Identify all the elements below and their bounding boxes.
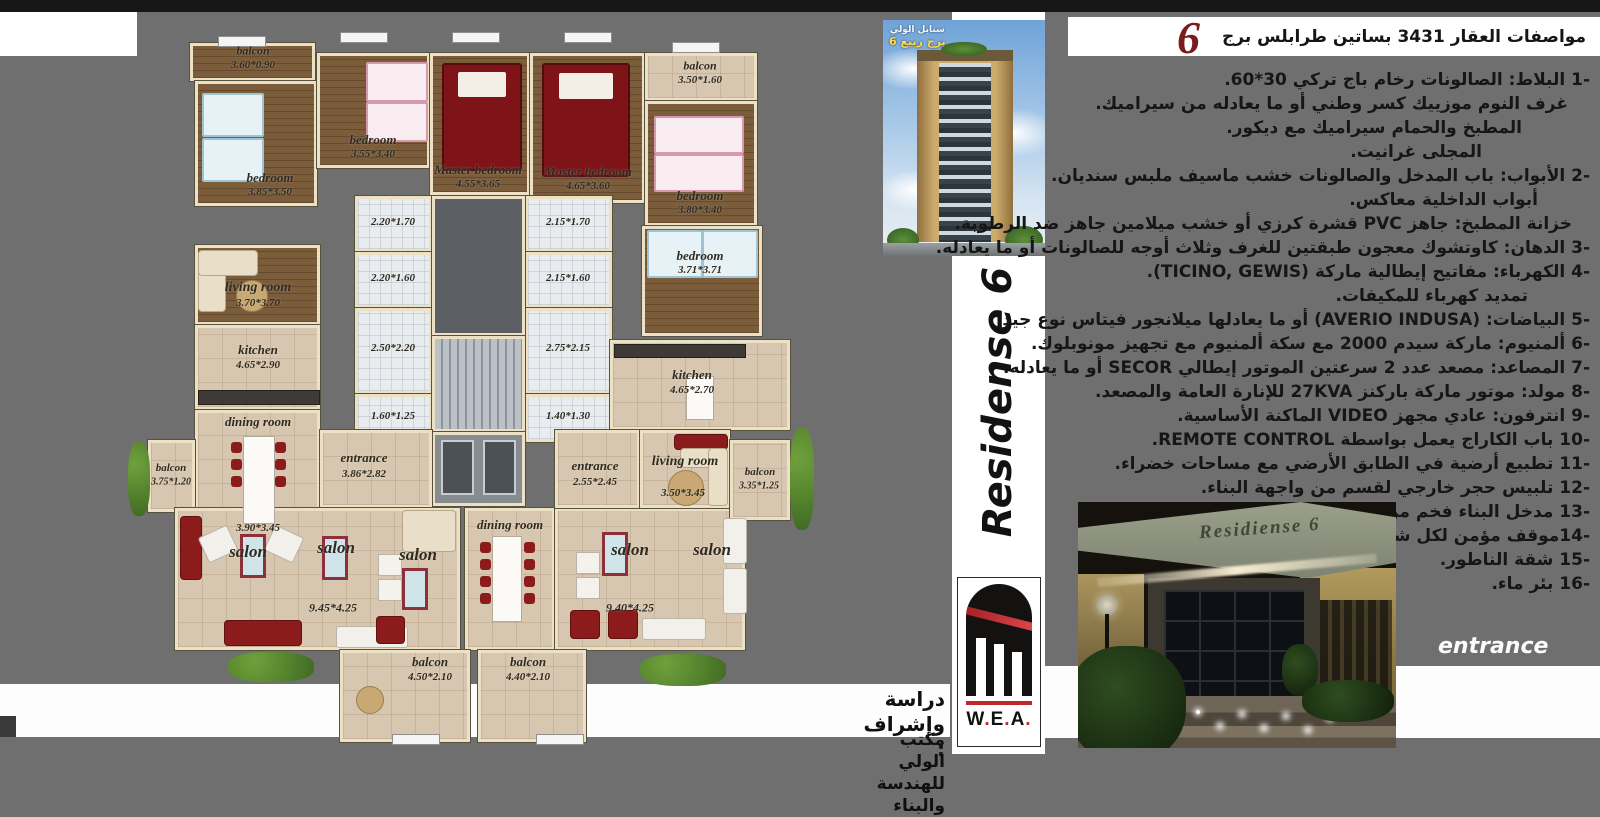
furniture-mirror — [402, 568, 428, 610]
room-label: kitchen — [238, 342, 278, 358]
furniture-bedred — [542, 63, 630, 177]
photo-plant — [1078, 646, 1186, 748]
room-lift — [432, 432, 525, 506]
room-label: 3.86*2.82 — [342, 468, 386, 480]
room-void — [432, 196, 525, 336]
furniture-win — [536, 734, 584, 745]
room-label: 4.50*2.10 — [408, 671, 452, 683]
room-label: 3.70*3.70 — [236, 297, 280, 309]
furniture-bedkid — [202, 93, 264, 137]
render-caption: سنابل الولي برج ربيع 6 — [889, 25, 946, 48]
room-label: bedroom — [677, 188, 724, 204]
room-label: kitchen — [672, 367, 712, 383]
room-label: balcon — [745, 466, 776, 478]
room-label: entrance — [572, 458, 619, 474]
furniture-sofar — [376, 616, 405, 644]
furniture-chairr — [275, 459, 286, 470]
room-label: 3.50*3.45 — [661, 487, 705, 499]
logo-red-line — [966, 701, 1032, 705]
room-label: entrance — [341, 450, 388, 466]
furniture-chairr — [480, 559, 491, 570]
left-edge-notch — [0, 716, 16, 737]
logo-letter: A — [1011, 709, 1026, 730]
logo-red-stripe — [966, 604, 1032, 633]
furniture-chairr — [524, 559, 535, 570]
furniture-chairr — [231, 442, 242, 453]
logo-pillar — [1012, 652, 1022, 696]
room-label: 3.75*1.20 — [151, 477, 191, 488]
furniture-win — [392, 734, 440, 745]
room-label: balcon — [683, 59, 716, 74]
room-label: 9.45*4.25 — [309, 601, 357, 616]
spec-item: -10 باب الكاراج يعمل بواسطة REMOTE CONTR… — [1050, 428, 1590, 452]
furniture-sofar — [570, 610, 600, 639]
render-caption-line2: برج ربيع 6 — [889, 35, 946, 48]
wea-logo: W.E.A. — [957, 577, 1041, 747]
photo-step-lights — [1196, 710, 1200, 714]
room-label: bedroom — [677, 248, 724, 264]
room-label: Master bedroom — [434, 162, 522, 178]
room-label: 2.50*2.20 — [371, 342, 415, 354]
furniture-chairr — [480, 593, 491, 604]
spec-item: غرف النوم موزييك كسر وطني أو ما يعادله م… — [1050, 92, 1590, 116]
furniture-chairr — [275, 442, 286, 453]
furniture-rug — [356, 686, 384, 714]
render-caption-line1: سنابل الولي — [889, 25, 946, 35]
room-label: 1.60*1.25 — [371, 410, 415, 422]
room-label: 3.85*3.50 — [248, 186, 292, 198]
furniture-sofaw — [642, 618, 706, 640]
spec-item: المطبخ والحمام سيراميك مع ديكور. — [1050, 116, 1590, 140]
furniture-sofar — [180, 516, 202, 580]
furniture-white2 — [576, 552, 600, 574]
room-label: 3.60*0.90 — [231, 59, 275, 71]
spec-item: تمديد كهرباء للمكيفات. — [1050, 284, 1590, 308]
page-title: مواصفات العقار 3431 بساتين طرابلس برج — [1222, 27, 1586, 47]
room-label: 2.20*1.60 — [371, 272, 415, 284]
room-label: 4.65*2.90 — [236, 359, 280, 371]
entrance-photo: Residiense 6 — [1078, 502, 1396, 748]
furniture-win — [672, 42, 720, 53]
logo-pillar — [994, 644, 1004, 696]
room-label: dining room — [477, 517, 543, 533]
room-label: 3.71*3.71 — [678, 264, 722, 276]
top-black-bar — [0, 0, 1600, 12]
furniture-plant — [790, 428, 814, 530]
room-label: balcon — [412, 654, 448, 670]
top-left-white-strip — [0, 12, 137, 56]
furniture-sofac — [198, 250, 258, 276]
spec-item: -4 الكهرباء: مفاتيح إيطالية ماركة (TICIN… — [1050, 260, 1590, 284]
furniture-chairr — [275, 476, 286, 487]
furniture-chairr — [524, 593, 535, 604]
room-label: 2.55*2.45 — [573, 476, 617, 488]
spec-item: -12 تلبيس حجر خارجي لقسم من واجهة البناء… — [1050, 476, 1590, 500]
room-label: salon — [399, 545, 437, 565]
room-label: 4.65*3.60 — [566, 180, 610, 192]
room-label: 3.35*1.25 — [739, 481, 779, 492]
furniture-chairr — [231, 476, 242, 487]
room-label: 4.40*2.10 — [506, 671, 550, 683]
logo-letter: W — [966, 709, 984, 730]
entrance-caption: entrance — [1438, 634, 1548, 659]
room-label: 3.55*3.40 — [351, 148, 395, 160]
room-label: 2.20*1.70 — [371, 216, 415, 228]
room-label: 3.90*3.45 — [236, 522, 280, 534]
spec-item: -3 الدهان: كاوتشوك معجون طبقتين للغرف وث… — [1050, 236, 1590, 260]
furniture-tablew — [243, 436, 275, 524]
room-label: 4.65*2.70 — [670, 384, 714, 396]
spec-item: -1 البلاط: الصالونات رخام باج تركي 30*60… — [1050, 68, 1590, 92]
photo-plant — [1302, 680, 1394, 722]
credits-line1: دراسة وإشراف : — [861, 687, 945, 729]
room-label: 4.55*3.65 — [456, 178, 500, 190]
room-label: living room — [225, 280, 292, 296]
logo-pillar — [976, 638, 986, 696]
spec-item: -8 مولد: موتور ماركة باركنز 27KVA للإنار… — [1050, 380, 1590, 404]
furniture-sofar — [224, 620, 302, 646]
room-label: salon — [693, 540, 731, 560]
header-strip: 6 مواصفات العقار 3431 بساتين طرابلس برج — [1068, 17, 1600, 56]
room-stairs — [432, 336, 525, 432]
furniture-plant — [128, 442, 150, 516]
room-label: 2.15*1.70 — [546, 216, 590, 228]
furniture-chairr — [480, 542, 491, 553]
furniture-sofaw — [723, 568, 747, 614]
spec-item: -11 تطبيع أرضية في الطابق الأرضي مع مساح… — [1050, 452, 1590, 476]
spec-item: المجلى غرانيت. — [1050, 140, 1590, 164]
room-label: Master bedroom — [544, 164, 632, 180]
furniture-counter — [614, 344, 746, 358]
spec-item: -7 المصاعد: مصعد عدد 2 سرعتين الموتور إي… — [1050, 356, 1590, 380]
room-label: 3.80*3.40 — [678, 204, 722, 216]
room-label: salon — [229, 542, 267, 562]
roof-plants — [941, 42, 987, 56]
furniture-bedkid — [654, 116, 744, 154]
furniture-white2 — [378, 579, 402, 601]
photo-sign-text: Residiense 6 — [1198, 514, 1321, 544]
furniture-chairr — [524, 576, 535, 587]
furniture-bedkid — [366, 62, 428, 102]
room-label: balcon — [510, 654, 546, 670]
furniture-chairr — [231, 459, 242, 470]
furniture-bedkid — [654, 154, 744, 192]
furniture-counter — [198, 390, 320, 405]
furniture-white2 — [576, 577, 600, 599]
spec-item: -9 انترفون: عادي مجهز VIDEO الماكنة الأس… — [1050, 404, 1590, 428]
logo-letter: E — [991, 709, 1005, 730]
room-label: salon — [611, 540, 649, 560]
furniture-plant — [640, 654, 726, 686]
wea-logo-arch — [966, 584, 1032, 696]
room-label: bedroom — [350, 132, 397, 148]
room-label: 1.40*1.30 — [546, 410, 590, 422]
room-label: bedroom — [247, 170, 294, 186]
room-label: 3.50*1.60 — [678, 74, 722, 86]
furniture-bedred — [442, 63, 522, 171]
spec-item: -2 الأبواب: باب المدخل والصالونات خشب ما… — [1050, 164, 1590, 188]
room-label: balcon — [236, 44, 269, 59]
spec-item: أبواب الداخلية معاكس. — [1050, 188, 1590, 212]
room-label: salon — [317, 538, 355, 558]
room-label: balcon — [156, 462, 187, 474]
logo-dot: . — [1025, 709, 1031, 730]
furniture-plant — [228, 652, 314, 682]
photo-lamp — [1096, 594, 1118, 616]
room-label: living room — [652, 454, 719, 470]
spec-item: خزانة المطبخ: جاهز PVC قشرة كرزي أو خشب … — [1050, 212, 1590, 236]
room-label: 9.40*4.25 — [606, 601, 654, 616]
room-label: 2.15*1.60 — [546, 272, 590, 284]
spec-item: -5 البياضات: (AVERIO INDUSA) أو ما يعادل… — [1050, 308, 1590, 332]
furniture-win — [452, 32, 500, 43]
room-label: 2.75*2.15 — [546, 342, 590, 354]
credits: دراسة وإشراف : مكتب الولي للهندسة والبنا… — [640, 687, 945, 779]
furniture-win — [340, 32, 388, 43]
wea-text: W.E.A. — [958, 709, 1040, 731]
floor-plan: balcon3.60*0.90bedroom3.85*3.50bedroom3.… — [140, 38, 877, 748]
room-label: dining room — [225, 414, 291, 430]
furniture-win — [564, 32, 612, 43]
furniture-chairr — [480, 576, 491, 587]
furniture-chairr — [524, 542, 535, 553]
spec-item: -6 ألمنيوم: ماركة سيدم 2000 مع سكة ألمني… — [1050, 332, 1590, 356]
furniture-tablew — [492, 536, 522, 622]
